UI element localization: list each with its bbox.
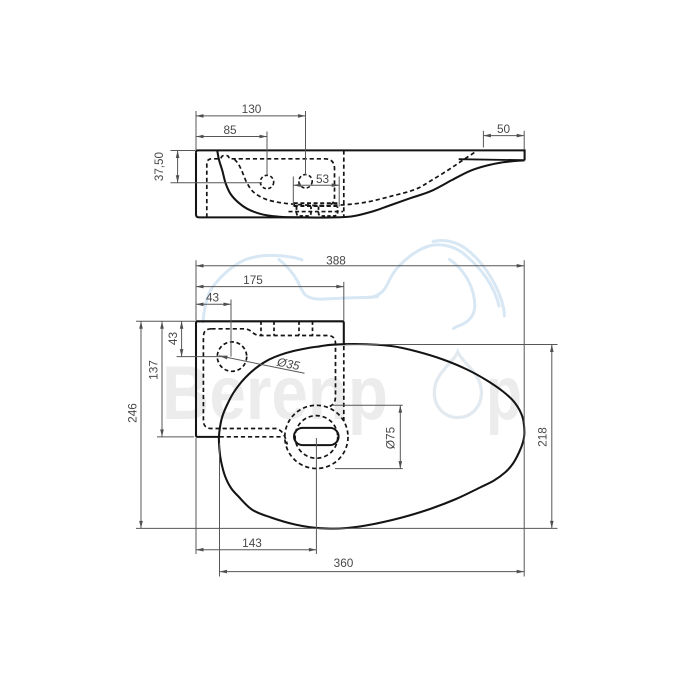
svg-text:246: 246 [126, 403, 140, 423]
svg-text:50: 50 [497, 122, 511, 136]
svg-text:Ø75: Ø75 [383, 426, 397, 449]
svg-text:218: 218 [535, 427, 549, 447]
svg-text:137: 137 [147, 360, 161, 380]
svg-text:43: 43 [206, 291, 220, 305]
svg-text:43: 43 [166, 332, 180, 346]
svg-text:37,50: 37,50 [153, 152, 166, 181]
svg-text:130: 130 [242, 102, 262, 116]
svg-text:360: 360 [334, 556, 354, 570]
svg-text:175: 175 [243, 273, 263, 287]
svg-text:85: 85 [223, 123, 237, 137]
svg-text:53: 53 [316, 172, 330, 186]
svg-text:143: 143 [242, 536, 262, 550]
svg-text:388: 388 [326, 253, 346, 267]
